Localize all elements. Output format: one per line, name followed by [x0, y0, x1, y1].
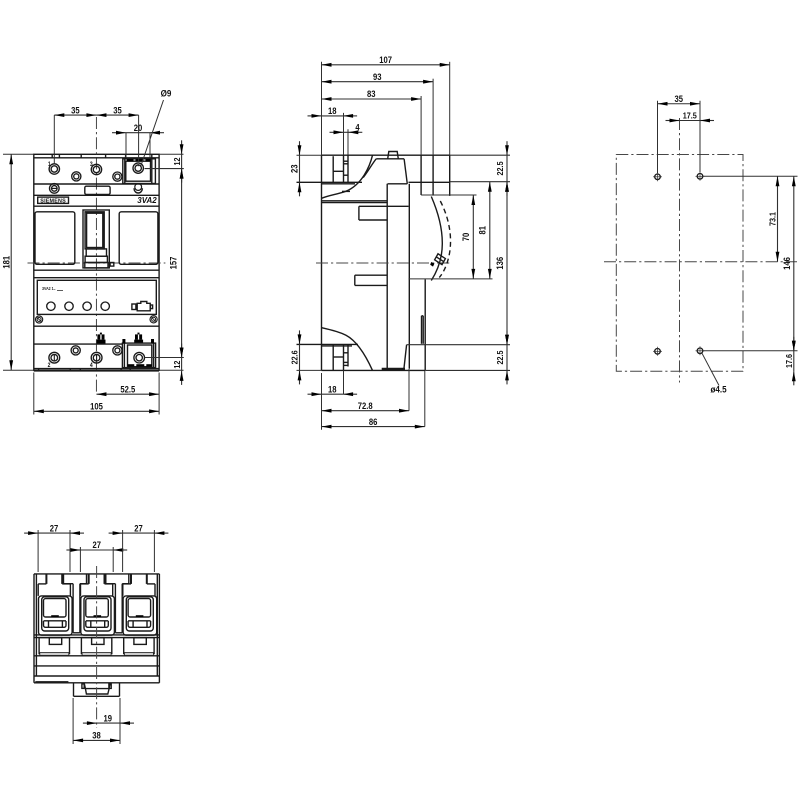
svg-text:72.8: 72.8 [358, 400, 373, 411]
svg-text:17.6: 17.6 [784, 353, 794, 368]
svg-text:3VA2 1..: 3VA2 1.. [42, 286, 56, 291]
svg-text:27: 27 [93, 540, 102, 551]
svg-text:83: 83 [367, 89, 376, 100]
svg-text:SIEMENS: SIEMENS [40, 199, 66, 205]
svg-text:ø4.5: ø4.5 [710, 384, 726, 395]
svg-text:12: 12 [172, 157, 182, 166]
svg-text:93: 93 [373, 71, 382, 82]
svg-text:22.6: 22.6 [290, 350, 300, 365]
svg-text:27: 27 [134, 523, 143, 534]
svg-text:35: 35 [113, 105, 122, 116]
svg-text:4: 4 [355, 122, 360, 133]
svg-text:73.1: 73.1 [768, 211, 778, 226]
svg-text:17.5: 17.5 [683, 111, 698, 121]
svg-text:105: 105 [90, 401, 103, 412]
svg-text:81: 81 [477, 226, 488, 235]
svg-text:18: 18 [328, 105, 337, 116]
svg-text:107: 107 [379, 54, 392, 65]
svg-text:3: 3 [90, 162, 93, 168]
svg-text:35: 35 [71, 105, 80, 116]
svg-text:146: 146 [781, 257, 792, 270]
svg-text:12: 12 [172, 360, 182, 369]
svg-text:157: 157 [168, 256, 179, 269]
svg-text:19: 19 [104, 713, 113, 724]
svg-text:27: 27 [50, 523, 59, 534]
svg-text:86: 86 [369, 416, 378, 427]
svg-text:70: 70 [460, 232, 471, 241]
svg-text:136: 136 [494, 256, 505, 269]
svg-text:23: 23 [289, 164, 300, 173]
svg-text:3VA2: 3VA2 [137, 196, 157, 205]
svg-text:181: 181 [1, 256, 12, 269]
svg-text:22.5: 22.5 [495, 161, 505, 176]
svg-text:52.5: 52.5 [120, 384, 135, 395]
svg-text:20: 20 [134, 122, 143, 133]
svg-text:22.5: 22.5 [495, 350, 505, 365]
svg-text:18: 18 [328, 384, 337, 395]
svg-text:38: 38 [92, 730, 101, 741]
svg-text:1: 1 [48, 162, 51, 168]
svg-text:Ø9: Ø9 [161, 88, 172, 99]
svg-text:35: 35 [674, 93, 683, 104]
